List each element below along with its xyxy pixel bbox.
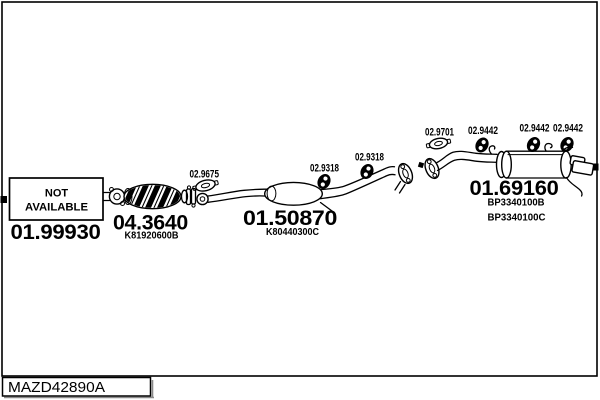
part-number-hanger-mid-1[interactable]: 02.9318 — [310, 163, 339, 175]
exhaust-parts-diagram: MAZD42890A NOT AVAILABLE 01.99930 04.364… — [0, 0, 600, 400]
part-number-hanger-rear-3[interactable]: 02.9442 — [553, 123, 583, 135]
diagram-code: MAZD42890A — [8, 380, 105, 396]
not-available-line2: AVAILABLE — [25, 202, 88, 214]
pipe-flange-icon — [197, 193, 208, 204]
front-pipe-section: NOT AVAILABLE 01.99930 — [10, 178, 104, 244]
part-number-rear-gasket[interactable]: 02.9701 — [425, 127, 454, 139]
oem-code-rear-muffler: BP3340100B — [488, 197, 545, 209]
oem-code-middle-muffler: K80440300C — [266, 226, 319, 238]
part-number-hanger-mid-2[interactable]: 02.9318 — [355, 152, 384, 164]
part-number-front-pipe[interactable]: 01.99930 — [11, 220, 101, 244]
part-number-front-gasket[interactable]: 02.9675 — [190, 169, 220, 181]
not-available-line1: NOT — [45, 188, 69, 200]
connection-marker-square-left — [1, 196, 8, 203]
oem-code-rear-muffler-alt: BP3340100C — [488, 212, 546, 224]
oem-code-catalyst: K81920600B — [125, 230, 179, 242]
part-number-hanger-rear-2[interactable]: 02.9442 — [520, 123, 550, 135]
diagram-code-box: MAZD42890A — [3, 378, 155, 398]
part-number-hanger-rear-1[interactable]: 02.9442 — [468, 125, 498, 137]
